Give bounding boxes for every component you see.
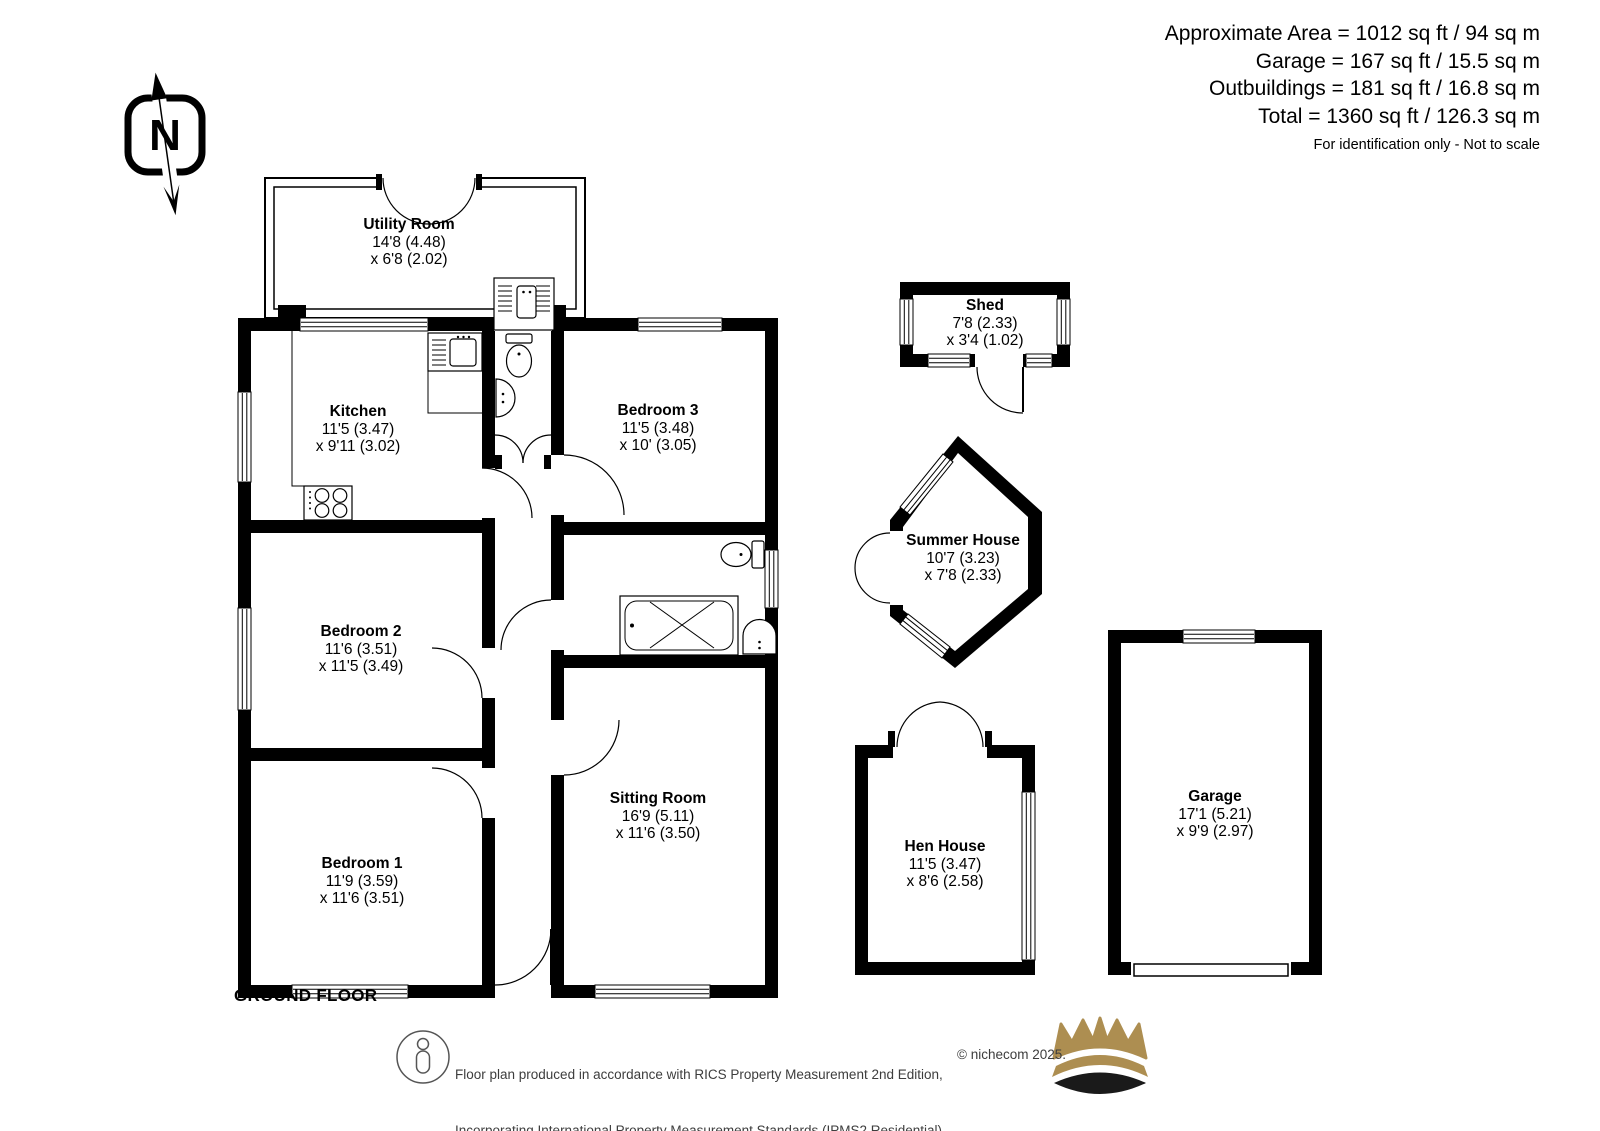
summer-house-building [855,436,1042,668]
footer-disclaimer: Floor plan produced in accordance with R… [455,1029,946,1131]
bedroom3-window-icon [638,318,722,331]
garage-building [1108,630,1322,976]
wc-door-stub-right [544,455,551,469]
approximate-area-line: Approximate Area = 1012 sq ft / 94 sq m [1165,20,1540,48]
sitting-room-window-icon [595,985,710,998]
hen-house-window-icon [1022,792,1035,960]
wc-toilet-icon [506,334,532,377]
total-area-line: Total = 1360 sq ft / 126.3 sq m [1165,103,1540,131]
wc-door-stub-left [495,455,502,469]
shed-building [900,282,1070,413]
footer-line-1: Floor plan produced in accordance with R… [455,1066,946,1085]
floorplan-drawing: N [0,0,1600,1131]
bedroom2-window-icon [238,608,251,710]
utility-wall-stub-left [278,305,306,319]
north-compass-icon: N [128,72,202,217]
shed-door-icon [977,367,1023,413]
floor-title: GROUND FLOOR [234,986,377,1006]
bathroom-basin-icon [743,620,776,655]
floorplan-page: N Approximate Area = 1012 sq ft / 94 sq … [0,0,1600,1131]
person-scale-icon [397,1031,449,1083]
hob-icon [304,486,352,520]
garage-area-line: Garage = 167 sq ft / 15.5 sq m [1165,48,1540,76]
scale-disclaimer: For identification only - Not to scale [1165,136,1540,154]
area-summary: Approximate Area = 1012 sq ft / 94 sq m … [1165,20,1540,154]
footer-line-2: Incorporating International Property Mea… [455,1122,946,1131]
utility-kitchen-window-icon [300,318,428,331]
hen-house-french-doors-icon [897,702,983,747]
summer-house-french-doors-icon [855,533,890,603]
compass-n-label: N [149,111,181,160]
outbuildings-area-line: Outbuildings = 181 sq ft / 16.8 sq m [1165,75,1540,103]
kitchen-window-icon [238,392,251,482]
hen-house-building [855,702,1035,975]
footer-copyright: © nichecom 2025. [957,1047,1066,1062]
kitchen-sink-icon [428,333,482,371]
bath-icon [620,596,738,655]
garage-door-icon [1134,964,1288,976]
crown-logo-icon [1052,1018,1148,1094]
main-house-walls [238,318,778,998]
bathroom-window-icon [765,550,778,608]
utility-sink-icon [494,278,554,330]
bathroom-toilet-icon [721,541,764,568]
garage-window-icon [1183,630,1255,643]
